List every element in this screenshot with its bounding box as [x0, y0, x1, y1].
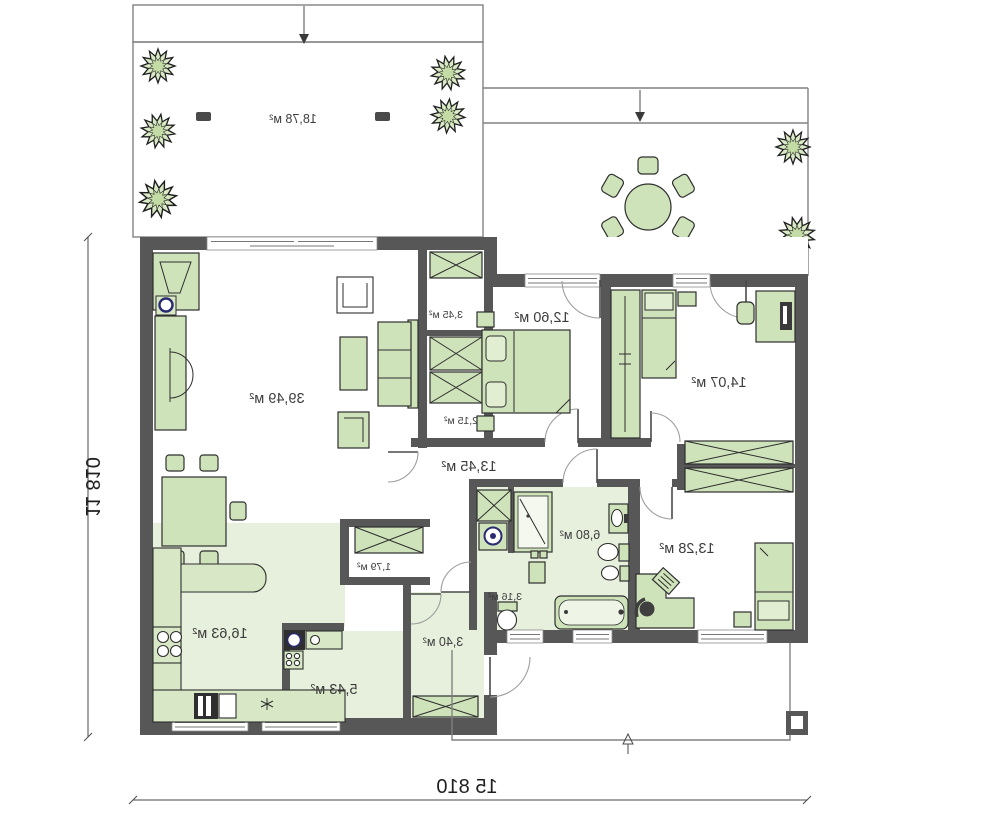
terrace-roof-strip — [133, 5, 483, 42]
cooktop-icon — [153, 627, 182, 663]
tree-icon — [134, 107, 182, 155]
terrace-arrow-icon — [635, 112, 645, 122]
wardrobe — [355, 527, 423, 553]
bidet-icon — [602, 566, 630, 581]
shower — [514, 492, 552, 552]
armchair — [337, 277, 373, 313]
terrace-floor — [133, 42, 483, 237]
bedroom2-window — [673, 274, 710, 287]
room-label-closet-c: 1,79 м² — [356, 561, 391, 573]
room-label-bedroom-2: 14,07 м² — [691, 375, 746, 391]
kitchen-sink-icon — [194, 693, 236, 719]
room-label-hall: 13,45 м² — [441, 459, 496, 475]
washing-machine-icon — [479, 523, 507, 550]
armchair — [338, 412, 369, 448]
room-label-entry-hall: 3,40 м² — [423, 635, 464, 649]
coffee-table — [340, 337, 367, 390]
double-bed — [477, 312, 570, 431]
tree-icon — [136, 177, 179, 220]
wardrobe — [430, 337, 482, 370]
room-label-wc: 3,16 м² — [487, 591, 522, 603]
terrace-lamp-icon — [196, 112, 211, 121]
dimension-height-label: 11 810 — [81, 457, 103, 517]
room-label-bedroom-3: 13,28 м² — [659, 541, 714, 557]
room-label-bedroom-1: 12,60 м² — [514, 310, 569, 326]
wardrobe — [685, 441, 793, 464]
tree-icon — [425, 93, 470, 138]
room-label-living: 39,49 м² — [249, 391, 304, 407]
tree-icon — [141, 49, 175, 83]
room-label-closet-a: 3,45 м² — [428, 309, 463, 321]
porch — [452, 643, 808, 754]
bath-cabinet — [529, 562, 545, 583]
room-label-terrace: 18,78 м² — [269, 112, 317, 126]
toilet-icon — [498, 602, 518, 630]
bathtub — [555, 596, 628, 629]
tree-icon — [426, 51, 470, 95]
round-table — [625, 184, 671, 230]
wardrobe — [685, 468, 793, 492]
office-chair-icon — [640, 602, 655, 617]
living-room-window — [207, 237, 377, 250]
sofa — [378, 320, 418, 408]
bath-second-window — [573, 630, 612, 643]
wardrobe — [413, 696, 478, 717]
bath-accessory — [531, 551, 538, 558]
fireplace — [153, 253, 199, 315]
bedroom3-window — [698, 630, 767, 643]
room-label-pantry: 5,43 м² — [310, 682, 357, 698]
room-label-closet-b: 2,15 м² — [443, 415, 478, 427]
room-label-kitchen: 16,63 м² — [192, 626, 247, 642]
water-heater — [477, 490, 511, 521]
toilet-icon — [598, 544, 629, 562]
bathroom-window — [507, 630, 543, 643]
wardrobe — [430, 252, 482, 278]
terrace-lamp-icon — [375, 112, 390, 121]
bathroom-sink — [609, 504, 628, 533]
entry-arrow-icon — [623, 734, 633, 744]
room-label-bathroom: 6,80 м² — [560, 528, 601, 542]
floor-plan-page: 18,78 м² 39,49 м² 3,45 м² 12,60 м² 2,15 … — [0, 0, 1000, 822]
bath-accessory — [540, 551, 547, 558]
tree-icon — [770, 124, 816, 170]
floor-plan: 18,78 м² 39,49 м² 3,45 м² 12,60 м² 2,15 … — [0, 0, 1000, 822]
dimension-width-label: 15 810 — [436, 776, 497, 798]
sliding-wardrobe — [611, 290, 640, 438]
wardrobe — [430, 372, 482, 403]
